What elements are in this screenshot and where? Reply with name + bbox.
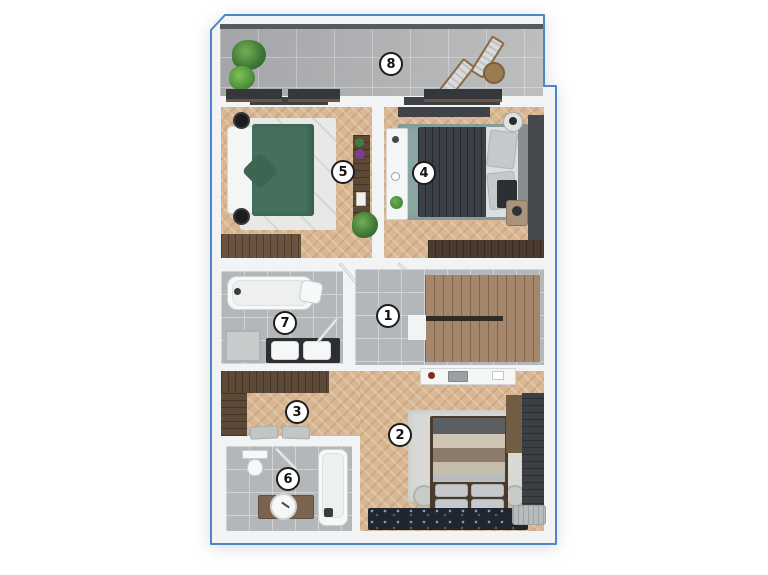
low-cabinet (221, 234, 301, 258)
shelf-decor-icon (355, 149, 365, 159)
toilet (298, 279, 323, 304)
room-badge-3: 3 (285, 400, 309, 424)
laptop-icon (448, 371, 468, 382)
room-number: 4 (419, 166, 428, 181)
terrace-table-icon (483, 62, 505, 84)
bed-pillow (435, 484, 468, 497)
faucet-icon (324, 508, 333, 517)
room-number: 3 (292, 405, 301, 420)
bathtub-inner (232, 280, 308, 306)
room-badge-5: 5 (331, 160, 355, 184)
desk-item (428, 372, 435, 379)
wardrobe (428, 240, 544, 258)
room-badge-4: 4 (412, 161, 436, 185)
bed-sheet (433, 474, 505, 482)
wardrobe (221, 371, 329, 393)
shelf-plant-icon (355, 138, 364, 147)
room-number: 6 (283, 472, 292, 487)
floorplan-image: 1 2 3 4 5 6 7 8 (0, 0, 768, 575)
shelf-unit (506, 395, 522, 453)
room-number: 2 (395, 428, 404, 443)
room-badge-2: 2 (388, 423, 412, 447)
room-number: 8 (386, 57, 395, 72)
desk-plant-icon (390, 196, 403, 209)
dark-carpet (368, 508, 528, 530)
desk-paper (492, 371, 504, 380)
shower-cabinet (225, 330, 261, 362)
planter-box (288, 89, 340, 102)
terrace-railing (220, 24, 543, 29)
toilet-tank (242, 450, 268, 459)
sink (271, 341, 299, 360)
bench (282, 426, 310, 440)
toilet (247, 459, 263, 476)
wardrobe (221, 393, 247, 436)
wardrobe (522, 393, 544, 511)
headboard-wall-panel (398, 107, 490, 117)
nightstand-round (233, 208, 250, 225)
bed-duvet-stripe (433, 434, 505, 448)
accent-wall (528, 115, 544, 247)
stair-wall (408, 315, 426, 340)
room-badge-7: 7 (273, 311, 297, 335)
sink-round (270, 493, 297, 520)
bed-duvet-stripe (433, 448, 505, 462)
planter-box (226, 89, 282, 102)
room-badge-8: 8 (379, 52, 403, 76)
stairs-gap (425, 316, 503, 321)
desk-lamp-icon (392, 136, 399, 143)
room-number: 7 (280, 316, 289, 331)
sink (303, 341, 331, 360)
planter-box (424, 89, 502, 102)
nightstand-round (233, 112, 250, 129)
room-badge-6: 6 (276, 467, 300, 491)
bed-pillow (486, 129, 518, 169)
bed-duvet-stripe (433, 462, 505, 474)
room-badge-1: 1 (376, 304, 400, 328)
radiator (512, 505, 546, 525)
room-number: 5 (338, 165, 347, 180)
nightstand-decor (509, 117, 517, 125)
bed-blanket-fold (433, 418, 505, 434)
room-number: 1 (383, 309, 392, 324)
bench (250, 425, 279, 439)
faucet-icon (234, 288, 241, 295)
table-lamp-icon (512, 206, 522, 216)
shelf-books (356, 192, 366, 206)
bed-pillow (471, 484, 504, 497)
desk-item (391, 172, 400, 181)
